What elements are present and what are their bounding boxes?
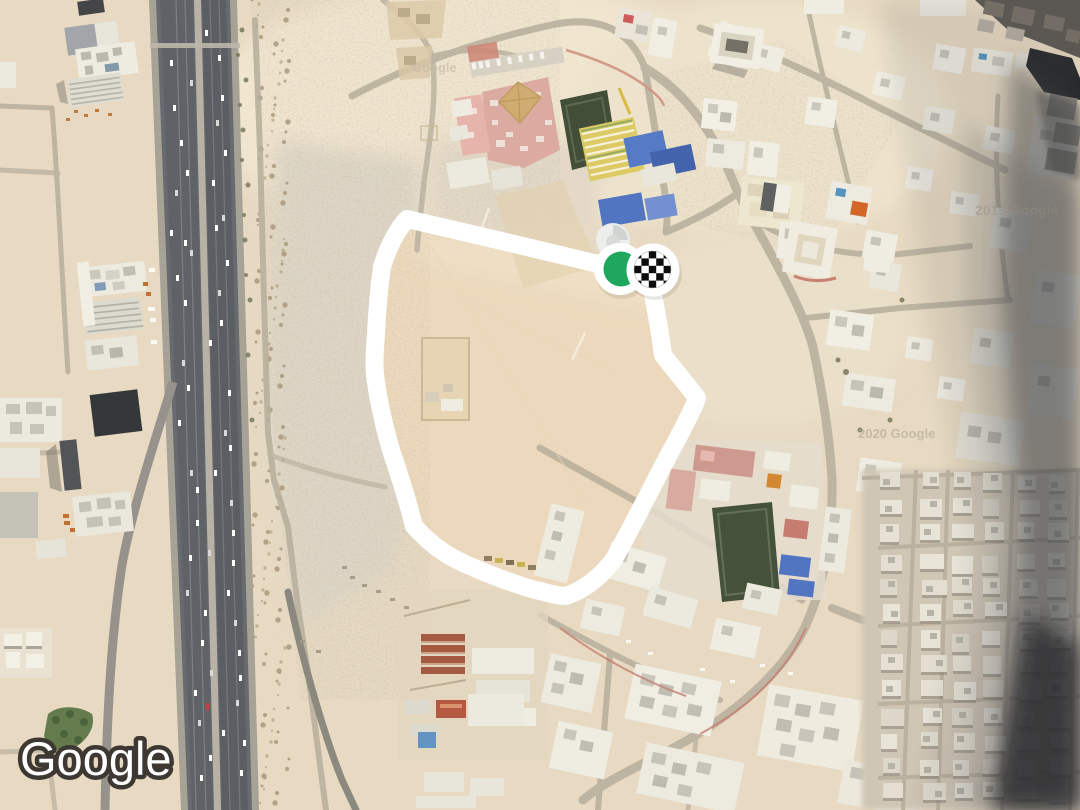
svg-text:Google: Google <box>20 732 172 785</box>
